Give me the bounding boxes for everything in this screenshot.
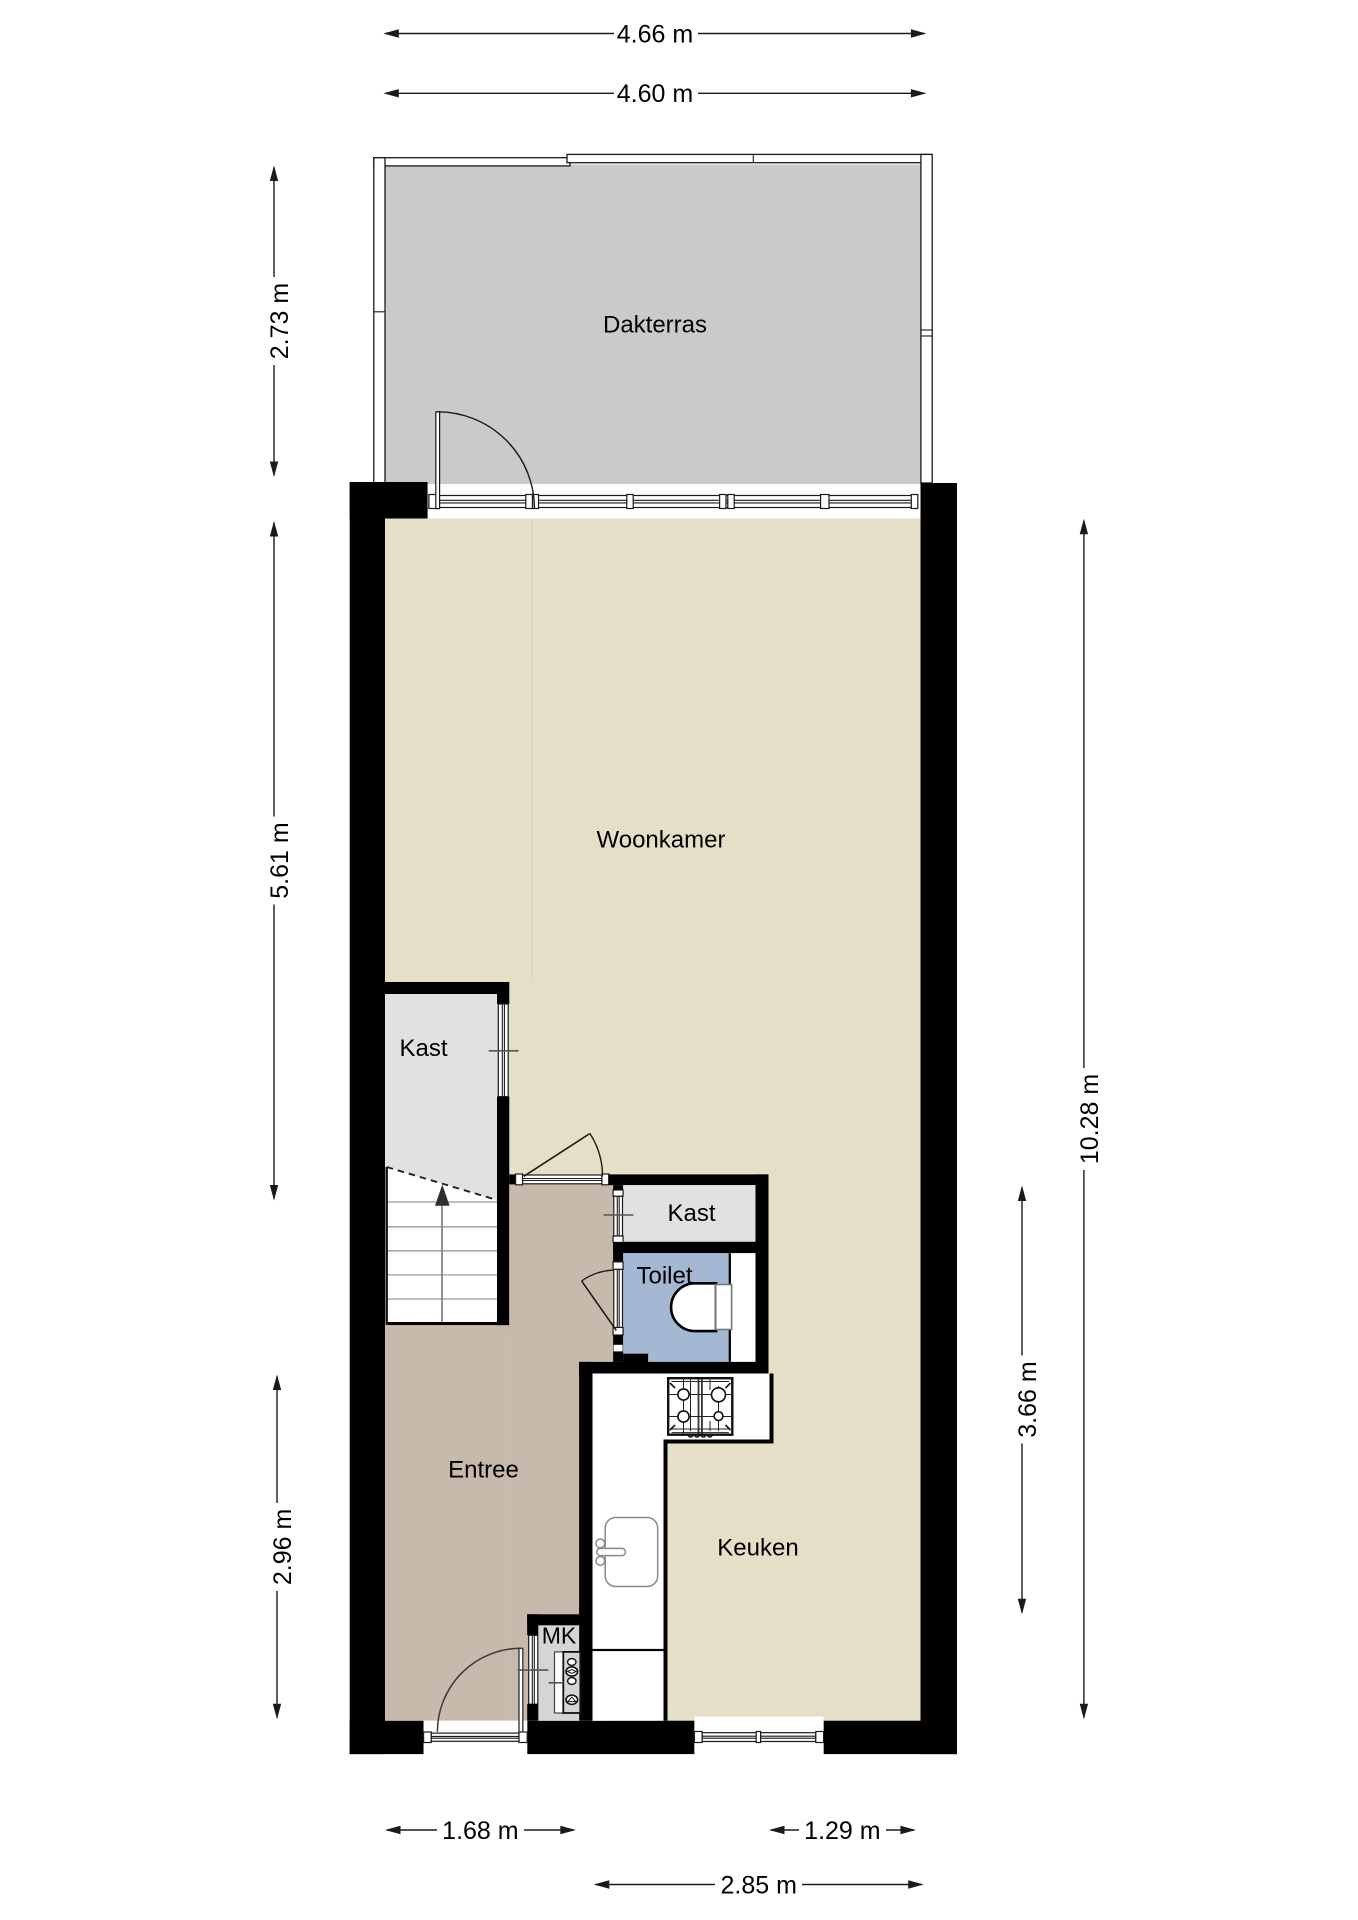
- svg-text:Kast: Kast: [399, 1035, 447, 1062]
- svg-text:4.60 m: 4.60 m: [617, 80, 693, 108]
- svg-text:4.66 m: 4.66 m: [617, 20, 693, 48]
- svg-text:Kast: Kast: [667, 1200, 715, 1227]
- svg-text:Entree: Entree: [448, 1457, 519, 1484]
- svg-text:10.28 m: 10.28 m: [1076, 1074, 1104, 1164]
- svg-text:Keuken: Keuken: [717, 1535, 798, 1562]
- svg-text:5.61 m: 5.61 m: [266, 822, 294, 898]
- svg-text:1.29 m: 1.29 m: [804, 1817, 880, 1845]
- svg-text:2.73 m: 2.73 m: [266, 283, 294, 359]
- svg-text:1.68 m: 1.68 m: [442, 1817, 518, 1845]
- svg-text:2.96 m: 2.96 m: [269, 1509, 297, 1585]
- svg-text:Dakterras: Dakterras: [603, 312, 707, 339]
- svg-text:Toilet: Toilet: [636, 1263, 692, 1290]
- svg-text:MK: MK: [542, 1623, 577, 1649]
- svg-text:3.66 m: 3.66 m: [1014, 1361, 1042, 1437]
- svg-text:Woonkamer: Woonkamer: [597, 827, 726, 854]
- svg-text:2.85 m: 2.85 m: [720, 1871, 796, 1899]
